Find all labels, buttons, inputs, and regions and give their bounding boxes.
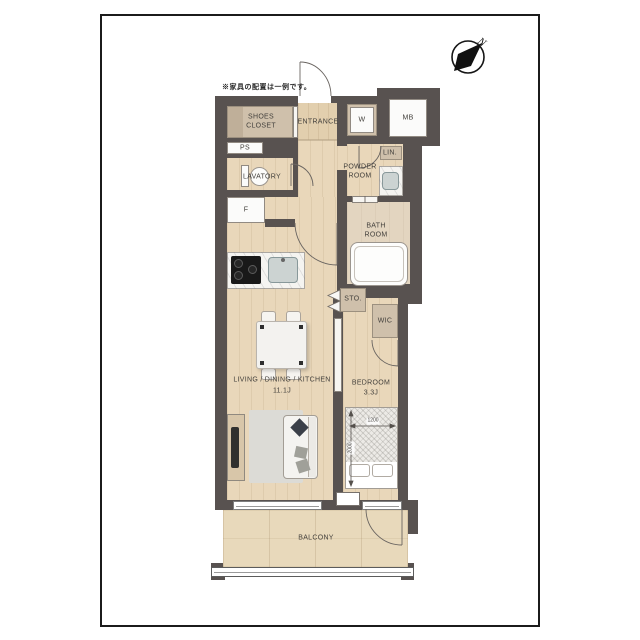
dining-table xyxy=(256,321,307,369)
balcony-rail xyxy=(211,567,414,577)
label-washer: W xyxy=(359,115,366,124)
bath-folding-door xyxy=(352,196,378,203)
label-storage: STO. xyxy=(344,294,361,303)
label-wic: WIC xyxy=(378,316,393,325)
bedroom-window xyxy=(362,501,402,510)
label-powder-room-line2: ROOM xyxy=(349,171,372,180)
stove-burner xyxy=(234,271,243,280)
label-pipe-space: PS xyxy=(240,143,250,152)
label-meter-box: MB xyxy=(402,113,413,122)
furniture-note: ※家具の配置は一例です。 xyxy=(222,82,311,92)
stove-burner xyxy=(248,265,257,274)
vanity-sink xyxy=(382,172,399,190)
balcony-rail-line xyxy=(214,572,411,573)
kitchen-faucet xyxy=(281,258,285,262)
table-leg xyxy=(260,325,264,329)
kitchen-stove xyxy=(231,256,261,284)
label-entrance: ENTRANCE xyxy=(298,117,339,126)
label-bath-room-line2: ROOM xyxy=(365,230,388,239)
label-bedroom: BEDROOM xyxy=(352,378,390,387)
label-ldk-size: 11.1J xyxy=(273,386,291,395)
label-ldk: LIVING / DINING / KITCHEN xyxy=(233,375,330,384)
label-shoes-closet-line2: CLOSET xyxy=(246,121,276,130)
table-leg xyxy=(299,325,303,329)
floorplan-page: N ※家具の配置は一例です。 SHOES CLOSET ENTRANCE W M… xyxy=(0,0,640,640)
bedroom-sliding-door xyxy=(334,318,342,392)
bathtub-inner xyxy=(354,246,404,282)
wall-hall-door-stub xyxy=(265,219,295,227)
label-linen: LIN. xyxy=(383,148,397,157)
label-bedroom-size: 3.3J xyxy=(364,388,378,397)
living-window xyxy=(233,501,322,510)
table-leg xyxy=(299,361,303,365)
label-bed-width: 1200 xyxy=(366,418,379,425)
label-refrigerator: F xyxy=(244,205,249,214)
table-leg xyxy=(260,361,264,365)
label-balcony: BALCONY xyxy=(298,533,334,542)
bed-pillow xyxy=(372,464,393,477)
stove-burner xyxy=(234,259,243,268)
label-bed-length: 2000 xyxy=(348,441,355,454)
shoes-closet-shelf xyxy=(228,107,243,137)
sofa-cushion-gray xyxy=(294,446,308,459)
ac-unit-box xyxy=(336,492,360,506)
tv xyxy=(231,427,239,468)
living-window-line xyxy=(236,506,319,507)
label-lavatory: LAVATORY xyxy=(243,172,281,181)
floor-hallway xyxy=(298,140,337,197)
bed-pillow xyxy=(349,464,370,477)
bedroom-window-line xyxy=(365,506,399,507)
